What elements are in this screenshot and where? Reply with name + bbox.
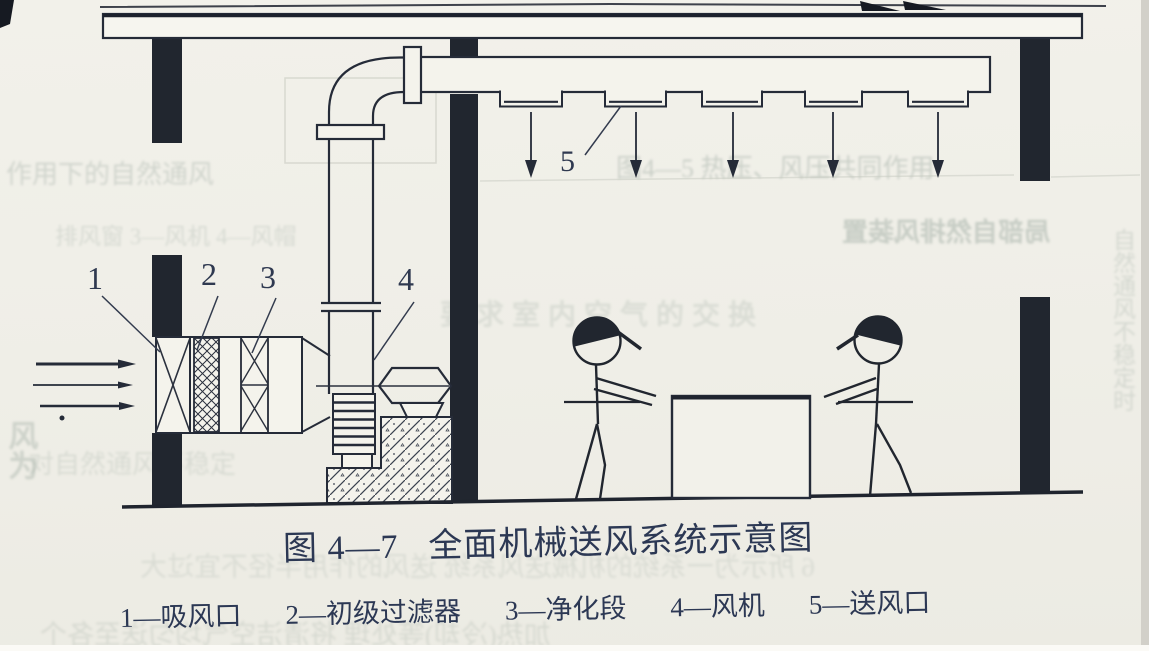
supply-outlet — [908, 89, 968, 107]
legend-label: 净化段 — [545, 593, 627, 625]
intake-louver — [156, 337, 190, 433]
right-wall — [1020, 38, 1050, 494]
leg — [870, 424, 876, 496]
legend-item: 4—风机 — [670, 591, 765, 624]
ink-dot — [60, 416, 65, 421]
leader-5 — [585, 106, 621, 155]
worker-right — [824, 312, 913, 496]
legend-label: 送风口 — [849, 587, 931, 619]
legend-num: 1 — [120, 603, 134, 633]
legend-dash: — — [684, 592, 712, 623]
legend-dash: — — [518, 595, 546, 626]
supply-outlet — [702, 89, 762, 107]
scan-edge-strip — [1141, 0, 1149, 651]
leader-1 — [102, 296, 160, 352]
floor-line — [122, 492, 1083, 507]
legend-num: 3 — [505, 595, 519, 625]
arm — [596, 378, 656, 396]
supply-outlet — [805, 89, 862, 107]
part-label-2: 2 — [201, 258, 217, 290]
arm — [824, 378, 876, 397]
motor-support — [400, 403, 443, 417]
transition-cone — [302, 338, 330, 432]
leg — [576, 424, 597, 499]
legend-dash: — — [299, 599, 327, 630]
fan-outlet-neck — [342, 454, 372, 468]
duct-flange-vertical — [404, 47, 421, 103]
scanned-textbook-figure: 作用下的自然通风 图4—5 热压、风压共同作用 排风窗 3—风机 4—风帽 局部… — [0, 0, 1149, 651]
supply-duct — [420, 57, 990, 107]
supply-outlet — [605, 89, 666, 107]
middle-column — [450, 38, 478, 502]
supply-outlet — [500, 89, 562, 107]
left-wall — [152, 38, 182, 506]
ceiling-slab — [103, 14, 1082, 38]
leg — [597, 424, 605, 499]
body — [876, 364, 879, 424]
corner-mark — [0, 0, 14, 28]
legend-num: 5 — [809, 590, 823, 620]
air-handling-unit — [156, 337, 330, 433]
top-edge-line — [100, 4, 1106, 7]
duct-elbow — [329, 58, 404, 127]
figure-number: 图 4—7 — [283, 529, 399, 569]
supply-airflow-arrows — [525, 112, 944, 178]
scan-bottom-strip — [0, 645, 1149, 651]
legend-item: 5—送风口 — [809, 587, 931, 620]
legend-num: 2 — [285, 600, 299, 630]
flexible-connector — [333, 394, 375, 454]
worker-left — [564, 313, 656, 499]
legend-item: 2—初级过滤器 — [285, 596, 461, 630]
part-label-1: 1 — [87, 262, 103, 294]
legend-label: 初级过滤器 — [326, 596, 462, 629]
part-label-5: 5 — [560, 147, 575, 177]
legend-label: 吸风口 — [160, 601, 242, 633]
legend-item: 1—吸风口 — [120, 601, 242, 634]
part-label-4: 4 — [398, 263, 414, 295]
legend-num: 4 — [670, 592, 684, 622]
leg — [877, 424, 911, 493]
workbench — [672, 396, 810, 498]
legend-dash: — — [822, 589, 850, 620]
intake-airflow-arrows — [33, 360, 136, 421]
legend-label: 风机 — [711, 591, 766, 622]
riser-flange — [317, 125, 384, 139]
primary-filter-panel — [194, 338, 219, 432]
legend-item: 3—净化段 — [505, 593, 627, 626]
part-label-3: 3 — [260, 261, 276, 293]
body — [596, 365, 598, 424]
legend-dash: — — [133, 602, 161, 633]
